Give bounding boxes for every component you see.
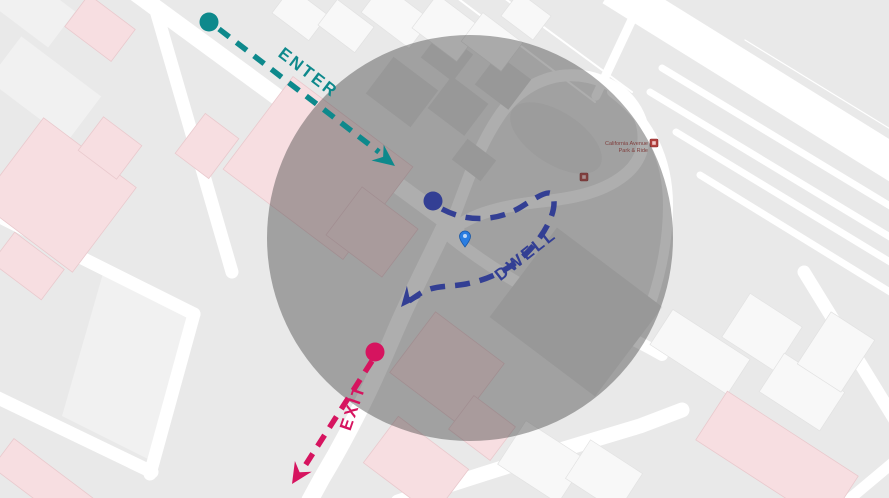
poi-station-icon-inner: [652, 141, 656, 145]
map-stage: California Avenue Park & Ride ENTER DWEL…: [0, 0, 889, 498]
dwell-point-dot: [424, 192, 443, 211]
exit-start-dot: [366, 343, 385, 362]
enter-start-dot: [200, 13, 219, 32]
transit-map: California Avenue Park & Ride ENTER DWEL…: [0, 0, 889, 498]
